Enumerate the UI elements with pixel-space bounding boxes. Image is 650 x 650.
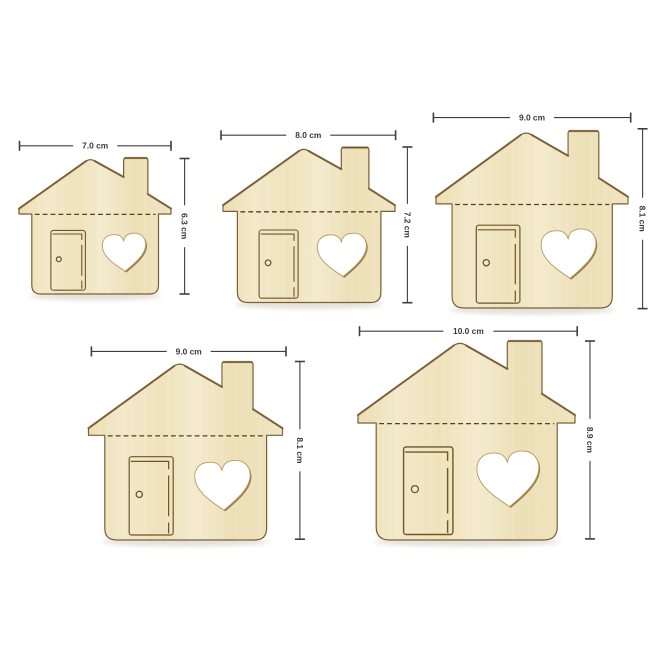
svg-text:8.1 cm: 8.1 cm: [638, 206, 648, 232]
svg-text:8.1 cm: 8.1 cm: [295, 437, 305, 463]
svg-text:9.0 cm: 9.0 cm: [176, 346, 202, 356]
svg-text:9.0 cm: 9.0 cm: [519, 113, 545, 123]
svg-text:10.0 cm: 10.0 cm: [453, 326, 484, 336]
svg-text:7.2 cm: 7.2 cm: [403, 212, 413, 238]
svg-text:6.3 cm: 6.3 cm: [180, 213, 190, 239]
svg-text:8.0 cm: 8.0 cm: [295, 130, 321, 140]
svg-text:8.9 cm: 8.9 cm: [585, 427, 595, 453]
svg-text:7.0 cm: 7.0 cm: [82, 141, 108, 151]
